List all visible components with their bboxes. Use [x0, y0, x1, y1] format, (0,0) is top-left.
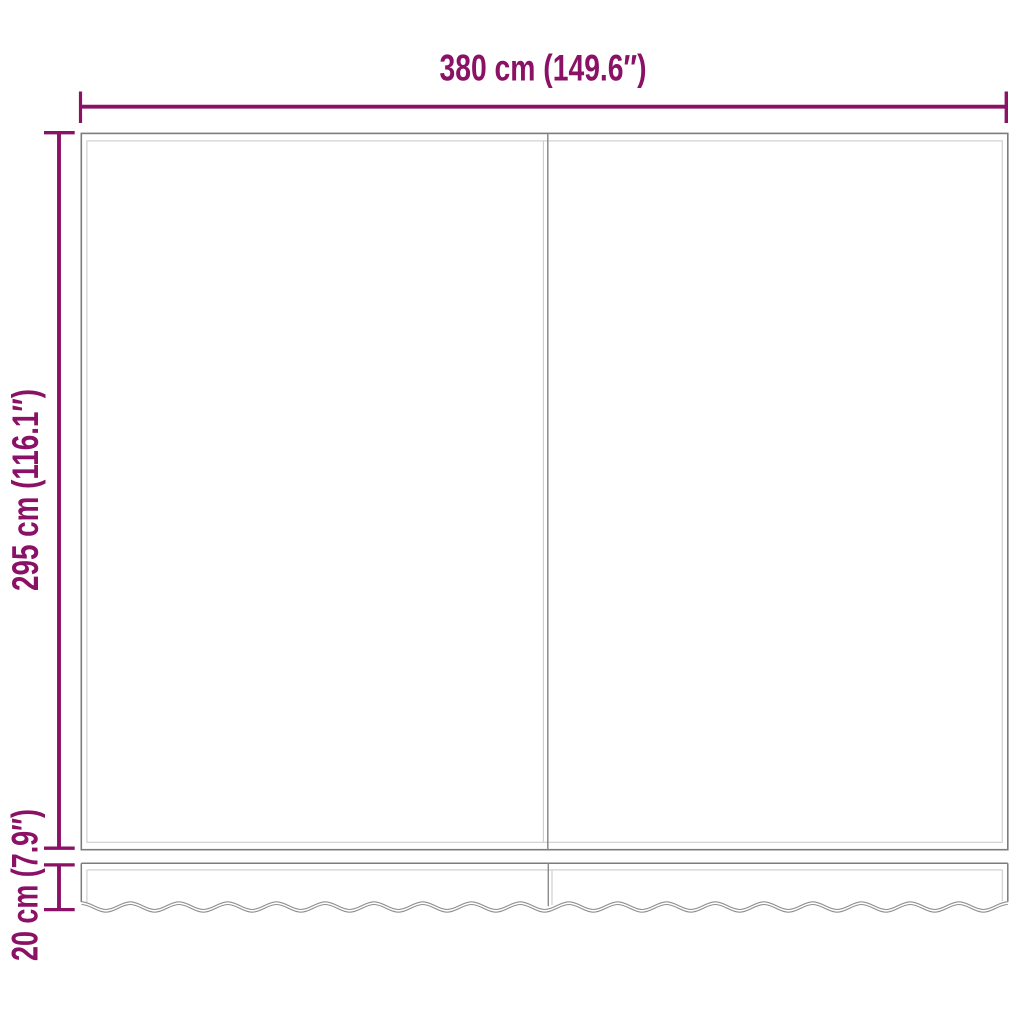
svg-text:380 cm (149.6″): 380 cm (149.6″) [440, 47, 647, 89]
svg-text:295 cm (116.1″): 295 cm (116.1″) [4, 389, 46, 591]
svg-text:20 cm (7.9″): 20 cm (7.9″) [4, 809, 46, 961]
